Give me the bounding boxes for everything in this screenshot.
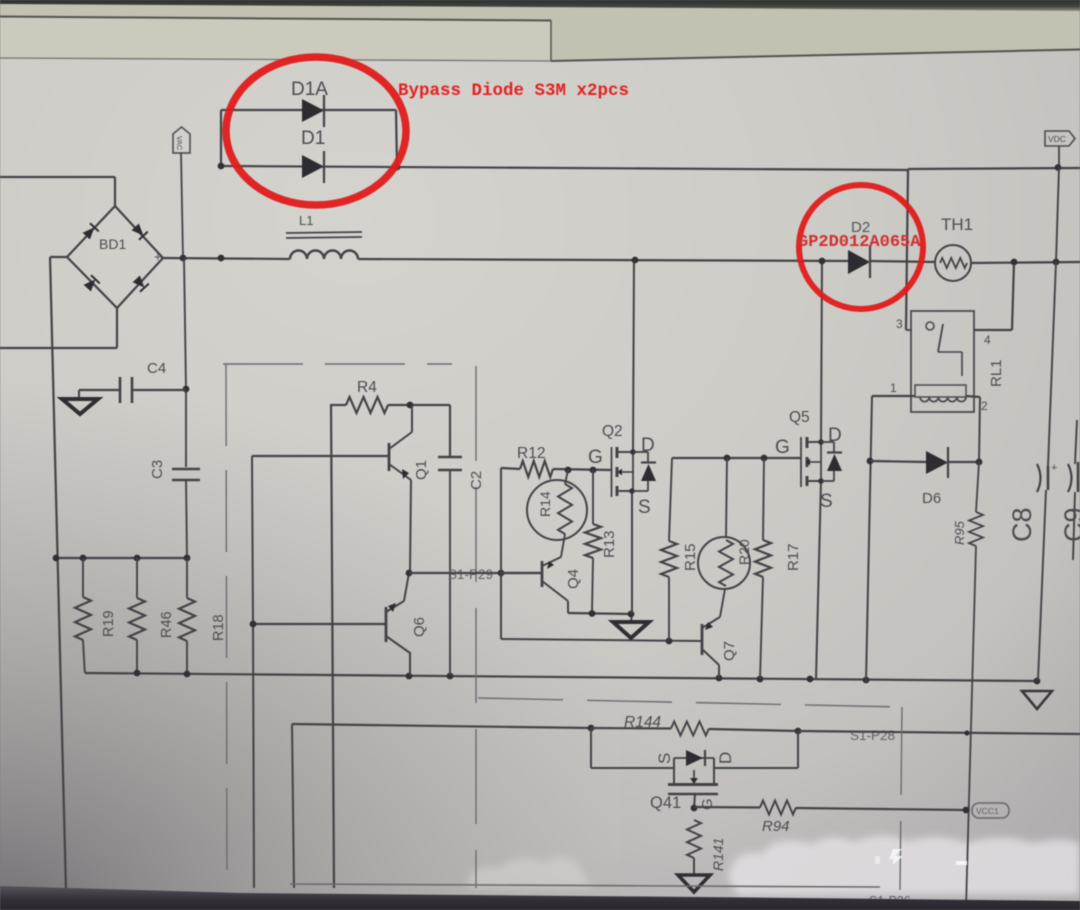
svg-text:D6: D6	[922, 490, 941, 507]
svg-text:Q1: Q1	[413, 460, 430, 480]
svg-text:TH1: TH1	[941, 215, 973, 234]
svg-text:2: 2	[981, 399, 988, 413]
svg-text:R46: R46	[159, 611, 175, 638]
svg-text:Q2: Q2	[602, 423, 623, 440]
svg-text:D1: D1	[301, 128, 325, 149]
svg-text:R19: R19	[101, 610, 117, 637]
svg-text:G: G	[775, 437, 790, 458]
svg-text:Q5: Q5	[789, 409, 810, 426]
svg-text:R141: R141	[710, 838, 726, 871]
svg-text:Q7: Q7	[721, 641, 738, 661]
svg-text:Q41: Q41	[650, 794, 681, 812]
svg-text:G: G	[699, 798, 716, 810]
svg-text:R14: R14	[537, 491, 553, 517]
svg-text:D1A: D1A	[291, 79, 328, 100]
svg-text:C3: C3	[149, 460, 166, 479]
svg-text:R12: R12	[517, 445, 545, 462]
svg-text:R20: R20	[736, 539, 752, 565]
svg-text:Bypass Diode S3M x2pcs: Bypass Diode S3M x2pcs	[398, 81, 629, 101]
svg-text:R17: R17	[785, 543, 802, 571]
svg-text:G: G	[588, 447, 603, 468]
svg-text:D: D	[716, 752, 735, 764]
svg-text:R13: R13	[601, 530, 618, 558]
svg-text:L1: L1	[299, 213, 313, 228]
svg-text:D: D	[828, 425, 842, 446]
svg-text:S: S	[638, 497, 651, 518]
svg-text:R18: R18	[211, 614, 227, 641]
svg-text:Q4: Q4	[565, 569, 582, 589]
svg-text:C9: C9	[1059, 507, 1080, 542]
svg-text:BD1: BD1	[99, 236, 126, 252]
svg-text:R144: R144	[624, 714, 661, 731]
svg-text:VCC1: VCC1	[976, 806, 999, 816]
svg-text:C2: C2	[468, 471, 485, 490]
svg-text:GP2D012A065A: GP2D012A065A	[798, 233, 921, 252]
svg-text:D: D	[641, 435, 655, 456]
svg-text:4: 4	[984, 333, 991, 347]
svg-text:3: 3	[896, 317, 903, 331]
svg-text:C4: C4	[147, 360, 166, 377]
svg-text:S: S	[820, 491, 833, 512]
svg-text:+: +	[154, 249, 162, 264]
svg-text:R95: R95	[952, 520, 967, 545]
svg-text:R15: R15	[682, 543, 699, 571]
svg-text:S1-P28: S1-P28	[850, 728, 895, 743]
svg-text:1: 1	[890, 381, 897, 395]
svg-text:VDC: VDC	[1048, 134, 1066, 144]
svg-text:Q6: Q6	[411, 617, 428, 637]
svg-text:R4: R4	[357, 379, 377, 396]
svg-text:R94: R94	[762, 818, 790, 835]
svg-text:S1-P29: S1-P29	[448, 567, 493, 582]
svg-text:VAC: VAC	[175, 136, 184, 150]
svg-text:RL1: RL1	[988, 359, 1005, 387]
svg-text:+: +	[1051, 462, 1057, 474]
svg-text:S: S	[655, 753, 674, 764]
svg-text:C8: C8	[1007, 507, 1037, 542]
